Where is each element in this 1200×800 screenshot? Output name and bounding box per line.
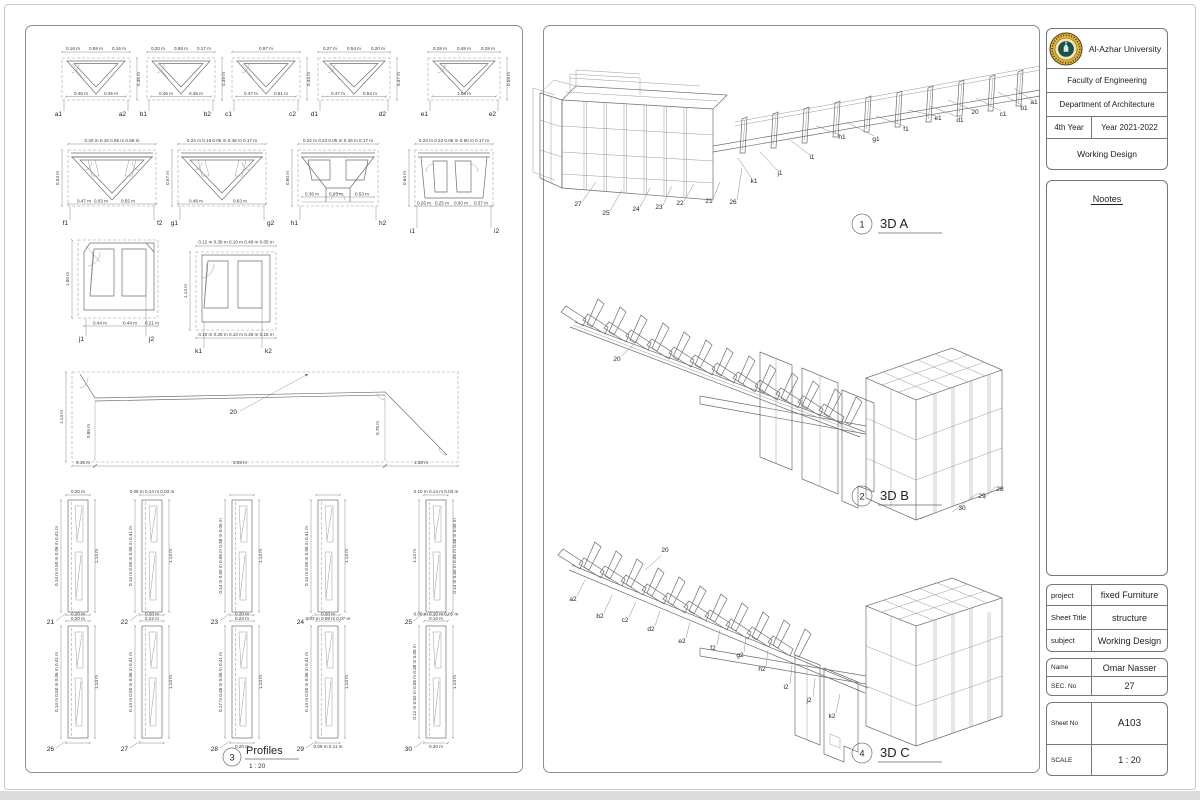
part-label: g2 (267, 220, 275, 227)
ref-label: 24 (632, 206, 640, 213)
dim-label: 1.04 m (457, 91, 471, 96)
dim-label: 0.16 m (66, 46, 80, 51)
dim-label: 0.48 m (457, 46, 471, 51)
dim-label: 0.10 m 0.25 m 0.10 m 0.48 m 0.15 m (198, 332, 273, 337)
part-label: h2 (379, 220, 387, 227)
ref-label: 20 (971, 109, 979, 116)
dim-label: 0.20 m 0.16 0.05 m 0.66 m (85, 138, 140, 143)
dim-label: 0.39 m (221, 72, 226, 86)
dim-label: 0.44 m (93, 321, 107, 326)
dim-label: 1.14 m (258, 675, 263, 689)
ref-label: 20 (613, 356, 621, 363)
part-label: e2 (489, 111, 497, 118)
dim-label: 0.14 m 0.50 m 0.06 m 0.38 m 0.05 m (218, 518, 223, 593)
dim-label: 0.59 m (506, 72, 511, 86)
part-label: c2 (289, 111, 296, 118)
part-label: 24 (297, 619, 305, 626)
dim-label: 1.14 m (59, 410, 64, 424)
dim-label: 1.14 m (94, 549, 99, 563)
dim-label: 0.12 m 0.52 m 0.06 m 0.38 m 0.05 m (412, 644, 417, 719)
part-label: 23 (211, 619, 219, 626)
dim-label: 0.54 m (55, 171, 60, 185)
view-number: 3 (229, 753, 234, 763)
view-c-title: 4 3D C (852, 743, 942, 763)
dim-label: 0.97 m (259, 46, 273, 51)
ref-label: d1 (956, 117, 964, 124)
dim-label: 1.14 m (344, 675, 349, 689)
dim-label: 0.03 m (94, 199, 108, 204)
part-label: 28 (211, 746, 219, 753)
dim-label: 0.58 m (89, 46, 103, 51)
dim-label: 0.51 m (274, 91, 288, 96)
dim-label: 1.14 m (168, 675, 173, 689)
dim-label: 0.14 m 0.50 m 0.06 m 0.41 m (54, 652, 59, 712)
dim-label: 0.06 m 0.10 m 0.05 m (414, 612, 459, 617)
dim-label: 1.14 m (344, 549, 349, 563)
part-label: b2 (204, 111, 212, 118)
dim-label: 0.20 m (429, 744, 443, 749)
3d-view-a: 27 25 24 23 22 21 26 k1 j1 i1 h1 g1 f1 e… (533, 66, 1040, 234)
dim-label: 0.78 m (375, 421, 380, 435)
part-label: f2 (157, 220, 163, 227)
dim-label: 0.85 m (86, 424, 91, 438)
ref-label: 27 (574, 201, 582, 208)
dim-label: 0.20 m (151, 46, 165, 51)
ref-label: f2 (710, 645, 716, 652)
ref-label: 26 (729, 199, 737, 206)
dim-label: 0.14 m 0.50 m 0.06 m 0.41 m (304, 652, 309, 712)
slat-row-2 (68, 626, 446, 738)
part-label: 29 (297, 746, 305, 753)
ref-label: i1 (809, 154, 814, 161)
3d-view-b: 20 30 29 28 2 3D B (561, 299, 1004, 520)
dim-label: 0.43 m (306, 72, 311, 86)
ref-label: g2 (736, 652, 744, 659)
dim-label: 0.23 m 0.22 0.06 m 0.50 m 0.17 m (419, 138, 489, 143)
ref-label: i2 (783, 684, 788, 691)
part-label: 27 (121, 746, 129, 753)
dim-label: 0.37 m (474, 201, 488, 206)
part-label: c1 (225, 111, 232, 118)
drawing-sheet: Al-Azhar University Faculty of Engineeri… (0, 0, 1200, 800)
dim-label: 0.54 m (363, 91, 377, 96)
dim-label: 0.55 m (121, 199, 135, 204)
profiles-row-1: 0.16 m 0.58 m 0.16 m 0.45 m 0.45 m 0.35 … (55, 46, 511, 118)
part-label: i1 (410, 228, 415, 235)
dim-label: 0.26 m (417, 201, 431, 206)
part-label: i2 (494, 228, 499, 235)
dim-label: 0.20 m (321, 612, 335, 617)
part-label: j2 (148, 336, 154, 343)
dim-label: 3.08 m (233, 460, 247, 465)
dim-label: 0.17 m 0.46 m 0.06 m 0.41 m (218, 652, 223, 712)
dim-label: 1.14 m (412, 549, 417, 563)
part-label: a2 (119, 111, 127, 118)
ref-label: a1 (1030, 99, 1038, 106)
view-number: 1 (859, 220, 864, 230)
ref-label: e2 (678, 638, 686, 645)
part-label: d2 (379, 111, 387, 118)
3d-view-c: 20 a2 b2 c2 d2 e2 f2 g2 h2 i2 j2 k2 4 3D… (558, 542, 1002, 763)
profiles-row-2: 0.20 m 0.16 0.05 m 0.66 m 0.47 m 0.03 m … (55, 138, 499, 235)
dim-label: 0.20 m (235, 612, 249, 617)
part-label: b1 (140, 111, 148, 118)
ref-label: d2 (647, 626, 655, 633)
view-title: 3D B (880, 488, 909, 503)
part-label: e1 (421, 111, 429, 118)
ref-label: g1 (872, 136, 880, 143)
dim-label: 0.17 m (197, 46, 211, 51)
dim-label: 1.14 m (94, 675, 99, 689)
ref-label: f1 (903, 126, 909, 133)
slat-row-1 (68, 500, 446, 612)
dim-label: 1.14 m (452, 675, 457, 689)
ref-label: b1 (1020, 105, 1028, 112)
dim-label: 0.20 m (371, 46, 385, 51)
dim-label: 0.20 m (71, 489, 85, 494)
ref-label: 23 (655, 204, 663, 211)
ref-label: 28 (996, 486, 1004, 493)
profile-20-drawing: 1.14 m 0.85 m 0.78 m 0.18 m 3.08 m 1.38 … (59, 372, 458, 468)
part-label: 22 (121, 619, 129, 626)
part-label: h1 (291, 220, 299, 227)
dim-label: 0.10 m 0.14 m 0.03 m (414, 489, 459, 494)
dim-label: 0.54 m (347, 46, 361, 51)
dim-label: 0.27 m (323, 46, 337, 51)
view-scale: 1 : 20 (249, 763, 266, 770)
dim-label: 0.16 m (112, 46, 126, 51)
dim-label: 0.30 m (454, 201, 468, 206)
dim-label: 0.23 m (235, 616, 249, 621)
dim-label: 1.00 m (65, 272, 70, 286)
dim-label: 0.09 m 0.11 m (313, 744, 342, 749)
part-label: f1 (63, 220, 69, 227)
dim-label: 0.05 m 0.14 m 0.03 m (130, 489, 175, 494)
dim-label: 0.57 m (165, 171, 170, 185)
profiles-row-3: 1.00 m 0.44 m 0.44 m 0.21 m 0.12 m 0.39 … (65, 240, 276, 356)
part-label: k2 (265, 348, 272, 355)
dim-label: 0.64 m (402, 171, 407, 185)
dim-label: 0.44 m (123, 321, 137, 326)
dim-label: 1.38 m (414, 460, 428, 465)
dim-label: 0.21 m (145, 321, 159, 326)
part-label: j1 (78, 336, 84, 343)
dim-label: 0.12 m 0.39 m 0.10 m 0.48 m 0.05 m (198, 240, 273, 245)
dim-label: 0.47 m (396, 72, 401, 86)
dim-label: 0.24 m 0.16 0.05 m 0.48 m 0.17 m (187, 138, 257, 143)
dim-label: 0.23 m (329, 192, 343, 197)
dim-label: 0.63 m (233, 199, 247, 204)
ref-label: 22 (676, 200, 684, 207)
ref-label: c1 (1000, 111, 1007, 118)
dim-label: 0.45 m (74, 91, 88, 96)
dim-label: 0.22 m (145, 616, 159, 621)
part-label: g1 (171, 220, 179, 227)
view-title: 3D C (880, 745, 910, 760)
dim-label: 0.47 m (77, 199, 91, 204)
dim-label: 0.14 m 0.50 m 0.06 m 0.41 m (128, 652, 133, 712)
dim-label: 1.14 m (183, 284, 188, 298)
part-label: k1 (195, 348, 202, 355)
dim-label: 0.46 m (189, 91, 203, 96)
dim-label: 1.14 m (258, 549, 263, 563)
dim-label: 0.20 m (71, 612, 85, 617)
part-label: a1 (55, 111, 63, 118)
dim-label: 0.03 m 0.08 m 0.07 m (306, 616, 351, 621)
dim-label: 0.60 m (285, 171, 290, 185)
dim-label: 0.48 m (189, 199, 203, 204)
ref-label: k2 (829, 713, 836, 720)
ref-label: 25 (602, 210, 610, 217)
drawing-artwork: 0.16 m 0.58 m 0.16 m 0.45 m 0.45 m 0.35 … (0, 0, 1200, 800)
ref-label: j2 (805, 697, 811, 704)
ref-label: 30 (958, 505, 966, 512)
view-title: 3D A (880, 216, 909, 231)
slat-profiles: 0.20 m 0.14 m 0.50 m 0.06 m 0.41 m 1.14 … (47, 489, 459, 753)
dim-label: 0.18 m (76, 460, 90, 465)
ref-label: 20 (661, 547, 669, 554)
dim-label: 0.28 m (481, 46, 495, 51)
view-title: Profiles (246, 745, 283, 757)
ref-label: h1 (838, 134, 846, 141)
ref-label: k1 (751, 178, 758, 185)
dim-label: 0.47 m (331, 91, 345, 96)
dim-label: 0.14 m 0.50 m 0.06 m 0.41 m (128, 526, 133, 586)
view-number: 2 (859, 492, 864, 502)
dim-label: 0.25 m (435, 201, 449, 206)
dim-label: 0.35 m (136, 72, 141, 86)
dim-label: 0.14 m 0.50 m 0.06 m 0.41 m (54, 526, 59, 586)
dim-label: 0.58 m (174, 46, 188, 51)
dim-label: 0.22 m 0.22 0.05 m 0.49 m 0.17 m (303, 138, 373, 143)
dim-label: 0.45 m (104, 91, 118, 96)
part-label: 25 (405, 619, 413, 626)
part-label: 20 (230, 409, 238, 416)
dim-label: 0.46 m (159, 91, 173, 96)
ref-label: e1 (934, 115, 942, 122)
view-number: 4 (859, 749, 864, 759)
dim-label: 0.53 m (355, 192, 369, 197)
ref-label: a2 (569, 596, 577, 603)
dim-label: 0.14 m 0.50 m 0.06 m 0.38 m 0.05 m (452, 518, 457, 593)
ref-label: 21 (705, 198, 713, 205)
dim-label: 0.47 m (244, 91, 258, 96)
dim-label: 0.36 m (305, 192, 319, 197)
ref-label: b2 (596, 613, 604, 620)
part-label: 30 (405, 746, 413, 753)
ref-label: c2 (622, 617, 629, 624)
dim-label: 0.28 m (433, 46, 447, 51)
ref-label: j1 (776, 170, 782, 177)
part-label: d1 (311, 111, 319, 118)
dim-label: 0.14 m 0.50 m 0.06 m 0.41 m (304, 526, 309, 586)
part-label: 21 (47, 619, 55, 626)
dim-label: 0.10 m (429, 616, 443, 621)
ref-label: 29 (978, 493, 986, 500)
dim-label: 0.20 m (145, 612, 159, 617)
view-a-title: 1 3D A (852, 214, 942, 234)
dim-label: 1.14 m (168, 549, 173, 563)
ref-label: h2 (758, 666, 766, 673)
part-label: 26 (47, 746, 55, 753)
